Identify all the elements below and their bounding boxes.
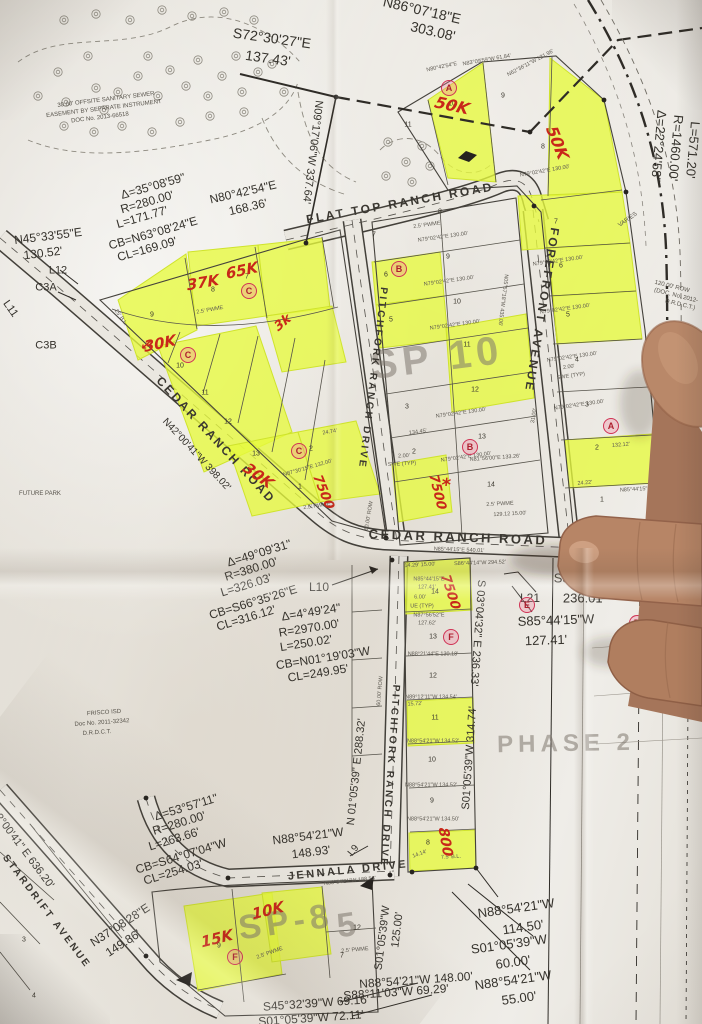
- hand: [0, 0, 702, 1024]
- hand-fingers: [558, 306, 702, 722]
- plat-map-photo: SP 10SP-85PHASE 2 S72°30'27"E137.43'N86°…: [0, 0, 702, 1024]
